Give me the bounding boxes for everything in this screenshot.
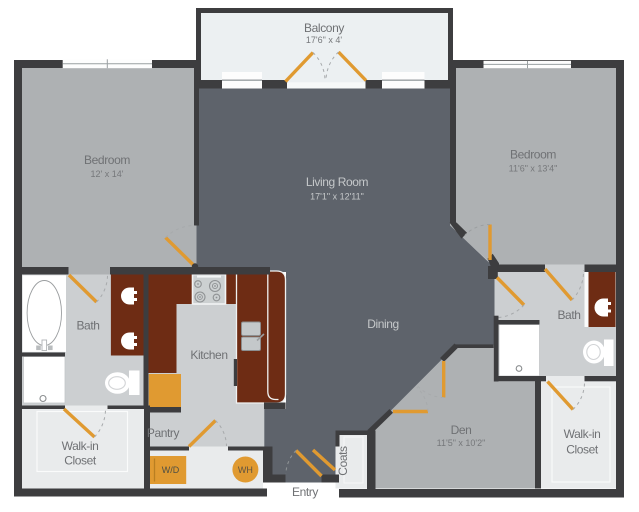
svg-text:11'5" x 10'2": 11'5" x 10'2" [437, 438, 486, 448]
svg-text:Bedroom: Bedroom [510, 148, 556, 162]
svg-text:Den: Den [451, 423, 472, 437]
svg-text:Bath: Bath [76, 319, 99, 333]
svg-text:Living Room: Living Room [306, 175, 369, 189]
svg-text:Kitchen: Kitchen [190, 348, 227, 362]
svg-text:Pantry: Pantry [147, 426, 180, 440]
svg-text:Walk-in: Walk-in [62, 439, 99, 453]
svg-text:Dining: Dining [367, 317, 399, 331]
svg-text:Closet: Closet [566, 443, 599, 457]
svg-text:Balcony: Balcony [304, 21, 344, 35]
svg-text:W/D: W/D [162, 465, 180, 475]
svg-text:Coats: Coats [336, 446, 350, 476]
svg-text:WH: WH [238, 465, 253, 475]
svg-text:Closet: Closet [64, 454, 97, 468]
svg-text:Bedroom: Bedroom [84, 153, 130, 167]
svg-text:12' x 14': 12' x 14' [91, 169, 124, 179]
svg-text:11'6" x 13'4": 11'6" x 13'4" [509, 164, 558, 174]
svg-text:Entry: Entry [292, 485, 318, 499]
svg-text:17'1" x 12'11": 17'1" x 12'11" [310, 192, 364, 202]
svg-text:Walk-in: Walk-in [564, 427, 601, 441]
svg-text:17'6" x 4': 17'6" x 4' [306, 35, 342, 45]
svg-text:Bath: Bath [557, 308, 580, 322]
